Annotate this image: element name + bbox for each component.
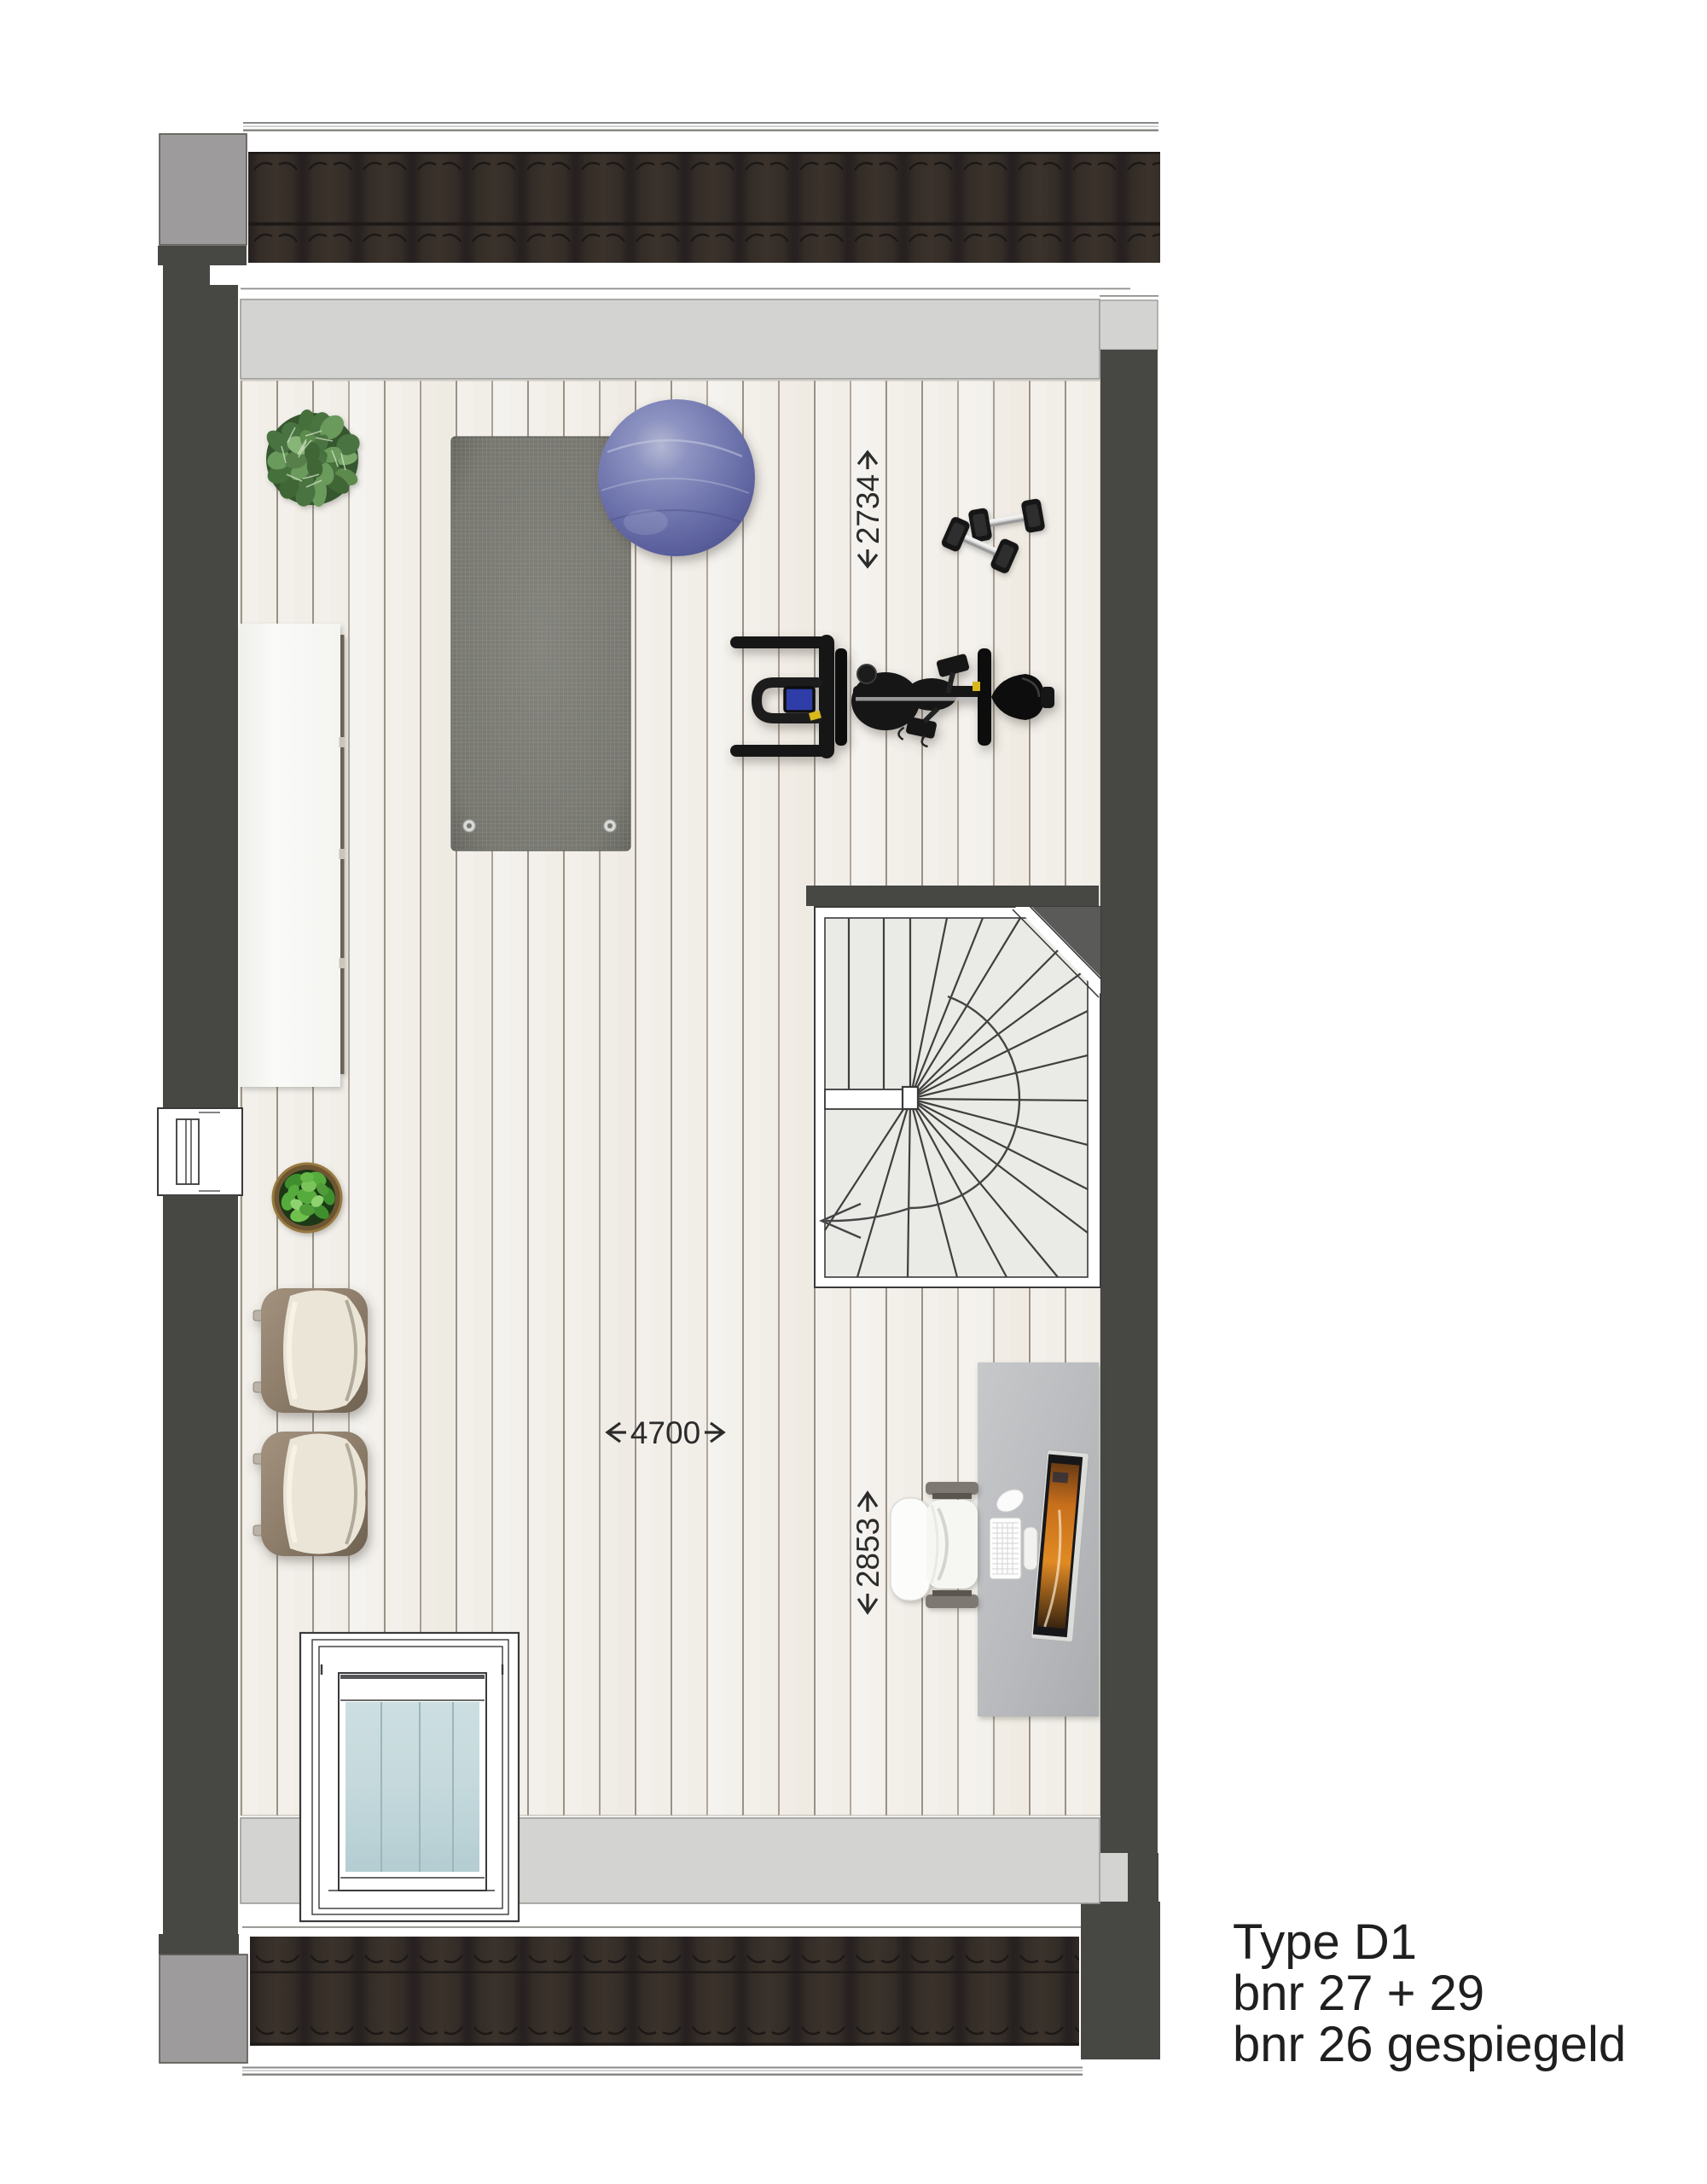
svg-text:4700: 4700 [630,1415,700,1450]
svg-text:Type D1: Type D1 [1233,1914,1417,1970]
svg-text:2853: 2853 [851,1518,885,1588]
svg-text:2734: 2734 [851,474,885,544]
svg-text:bnr 27 + 29: bnr 27 + 29 [1233,1966,1484,2021]
svg-text:bnr 26 gespiegeld: bnr 26 gespiegeld [1233,2017,1626,2072]
